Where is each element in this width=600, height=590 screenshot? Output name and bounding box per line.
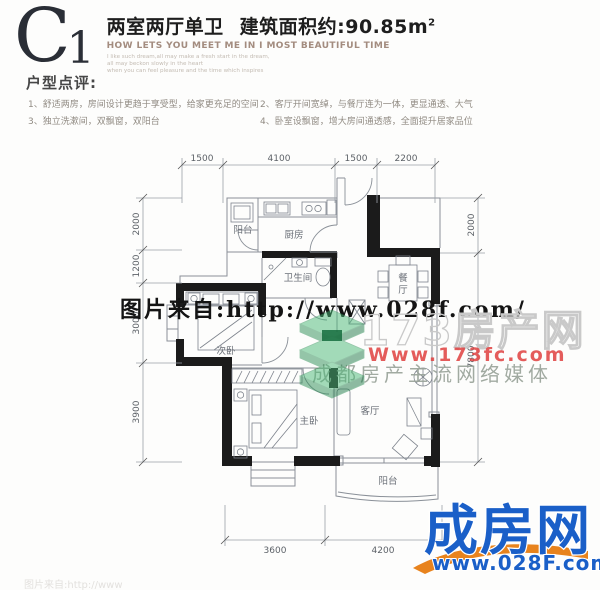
dim-top-1: 4100 [268,154,291,164]
plan-code-letter: C [14,6,71,67]
area-superscript: 2 [428,18,435,29]
floorplan-page: C 1 两室两厅单卫建筑面积约:90.85m2 HOW LETS YOU MEE… [0,0,600,590]
watermark-cube-block [322,330,342,341]
chengfangwang-logo: 成房网 www.028F.com [413,499,600,575]
area-text: 建筑面积约:90.85m [240,16,429,38]
plan-code: C 1 [14,6,95,80]
subtitle-english: HOW LETS YOU MEET ME IN I MOST BEAUTIFUL… [107,41,436,51]
room-label-balcony-top: 阳台 [233,224,252,236]
plan-code-number: 1 [67,27,95,71]
room-label-second-bedroom: 次卧 [216,345,236,357]
layout-name: 两室两厅单卫 [107,16,224,38]
watermark-bottom-partial: 图片来自:http://www [24,578,123,590]
dim-top-0: 1500 [191,154,214,164]
comment-item: 1、舒适两房，房间设计更趋于享受型，给家更充足的空间 [28,97,260,110]
comments-section: 户型点评: 1、舒适两房，房间设计更趋于享受型，给家更充足的空间 2、客厅开间宽… [26,72,592,127]
room-label-balcony-bottom: 阳台 [378,475,397,487]
fineprint-line: I like such dream,all may make a fresh s… [107,53,370,60]
comment-item: 4、卧室设飘窗，增大房间通透感，全面提升居家品位 [260,114,592,127]
room-label-living-room: 客厅 [360,405,380,417]
comment-item: 3、独立洗漱间，双飘窗，双阳台 [28,114,260,127]
dim-top-2: 1500 [345,154,368,164]
dim-left-3: 3900 [132,400,142,423]
dim-bottom-0: 3600 [264,546,287,556]
room-label-kitchen: 厨房 [284,229,303,241]
dim-left-1: 1200 [132,254,142,277]
watermark-cube-icon [300,310,364,398]
logo-url: www.028F.com [432,551,600,575]
dim-left-0: 2000 [132,212,142,235]
room-label-dining: 厅 [398,285,408,296]
comment-item: 2、客厅开间宽绰，与餐厅连为一体，更显通透、大气 [260,97,592,110]
fineprint-line: all may beckon slowly in the heart [107,60,370,67]
page-title: 两室两厅单卫建筑面积约:90.85m2 [107,12,436,39]
header: C 1 两室两厅单卫建筑面积约:90.85m2 HOW LETS YOU MEE… [14,6,436,80]
dim-bottom-1: 4200 [372,546,395,556]
comments-title: 户型点评: [26,72,592,93]
room-label-dining: 餐 [398,272,408,284]
dim-right-0: 2000 [467,213,477,236]
room-label-bathroom: 卫生间 [284,272,313,284]
title-block: 两室两厅单卫建筑面积约:90.85m2 HOW LETS YOU MEET ME… [107,6,436,80]
room-label-master-bedroom: 主卧 [299,415,319,427]
comments-list: 1、舒适两房，房间设计更趋于享受型，给家更充足的空间 2、客厅开间宽绰，与餐厅连… [28,97,592,127]
dim-top-3: 2200 [395,154,418,164]
